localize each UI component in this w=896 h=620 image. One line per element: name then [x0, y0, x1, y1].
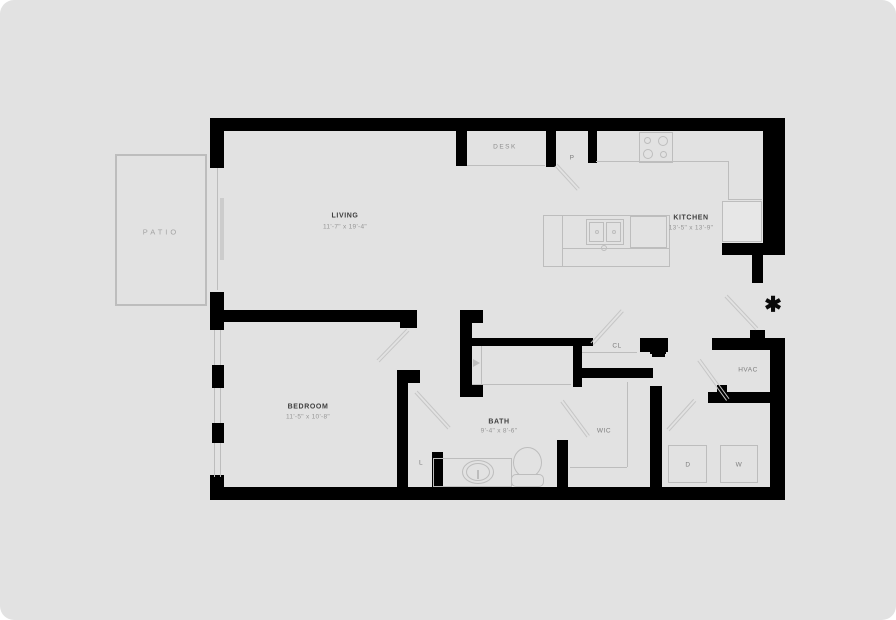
sink-drain-right [612, 230, 616, 234]
desk-counter-edge [467, 165, 545, 166]
bath-door-swing [415, 391, 451, 430]
shower-head-icon [473, 359, 480, 367]
wall-right-upper [763, 118, 785, 255]
bath-faucet [477, 470, 479, 479]
wic-rod-vertical [627, 382, 628, 467]
room-label-dryer: D [685, 462, 690, 469]
wall-right-lower [770, 338, 785, 500]
wall-bedroom-right-cap [397, 370, 420, 383]
wic-rod-horizontal [570, 467, 627, 468]
island-inner-hline [562, 248, 670, 249]
stove [639, 132, 673, 163]
room-label-desk: DESK [493, 144, 517, 151]
room-label-hvac: HVAC [738, 367, 758, 374]
wall-desk-stub-left [456, 131, 467, 166]
dishwasher [630, 216, 667, 248]
patio-slider-panel [220, 198, 224, 260]
floorplan-image: PATIO LIVING 11'-7" x 19'-4" KITCHEN 13'… [0, 0, 896, 620]
wall-bottom-exterior [210, 487, 785, 500]
wall-hvac-bottom [708, 392, 773, 403]
bedroom-window-3b [220, 443, 221, 477]
room-dims-living: 11'-7" x 19'-4" [323, 224, 367, 231]
wall-bedroom-top-cap [400, 310, 417, 328]
wall-bath-right [557, 440, 568, 487]
wall-bedroom-right [397, 370, 408, 487]
bedroom-window-1b [220, 330, 221, 365]
closet-shelf-line [582, 352, 637, 353]
room-label-bedroom: BEDROOM [288, 404, 329, 411]
bedroom-window-2b [220, 388, 221, 423]
closet-door-swing [591, 309, 624, 345]
floorplan: PATIO LIVING 11'-7" x 19'-4" KITCHEN 13'… [0, 0, 896, 620]
wall-window-post-1 [212, 365, 224, 388]
room-dims-kitchen: 13'-5" x 13'-9" [669, 225, 713, 232]
laundry-door-swing [667, 399, 697, 431]
bedroom-window-2 [214, 388, 215, 423]
room-label-pantry: P [570, 155, 575, 162]
room-label-kitchen: KITCHEN [673, 215, 708, 222]
toilet-tank [511, 474, 544, 487]
sink-drain-left [595, 230, 599, 234]
room-label-wic: WIC [597, 428, 611, 435]
wall-hall-bath-top-cap [460, 310, 483, 323]
wall-hall-bath-bottom-cap [460, 385, 483, 397]
burner-large-bl [643, 149, 653, 159]
room-label-bath: BATH [488, 419, 509, 426]
wall-wic-laundry-lower [650, 386, 662, 500]
wall-pantry-stub [588, 131, 597, 163]
room-dims-bath: 9'-4" x 8'-6" [481, 428, 518, 435]
counter-edge-fridge [728, 199, 762, 200]
wall-bedroom-top [223, 310, 404, 322]
wall-top-exterior [210, 118, 785, 131]
refrigerator [722, 201, 762, 242]
wall-entry-stub [752, 255, 763, 283]
wall-window-post-2 [212, 423, 224, 443]
patio-slider-track [217, 168, 218, 290]
wall-wic-laundry-upper [650, 338, 666, 354]
room-label-washer: W [736, 462, 743, 469]
island-inner-vline [562, 215, 563, 267]
room-label-living: LIVING [332, 213, 359, 220]
wall-left-mid-post [210, 292, 224, 330]
pantry-door-swing [555, 164, 580, 191]
bedroom-window-1 [214, 330, 215, 365]
room-label-linen: L [419, 460, 423, 467]
wall-hvac-top [712, 338, 785, 350]
entry-door-swing [725, 295, 759, 331]
burner-large-tr [658, 136, 668, 146]
shower-bottom-edge [472, 384, 571, 385]
entry-asterisk: ✱ [764, 293, 782, 318]
burner-small-tl [644, 137, 651, 144]
counter-edge-right [728, 161, 729, 200]
wall-shower-right [573, 338, 582, 387]
kitchen-faucet [601, 245, 607, 251]
room-label-patio: PATIO [143, 228, 179, 237]
room-dims-bedroom: 11'-5" x 10'-8" [286, 414, 330, 421]
bedroom-door-swing [377, 329, 410, 363]
wall-desk-stub-right [546, 131, 556, 167]
burner-small-br [660, 151, 667, 158]
wall-top-left-corner [210, 118, 224, 168]
shower-left-edge [481, 346, 482, 385]
wic-door-swing [560, 400, 589, 438]
kitchen-sink [586, 219, 624, 245]
room-label-closet: CL [612, 343, 621, 350]
wall-hall-bath [460, 310, 472, 397]
wall-closet-bottom [573, 368, 653, 378]
bedroom-window-3 [214, 443, 215, 477]
wall-below-fridge [722, 243, 785, 255]
